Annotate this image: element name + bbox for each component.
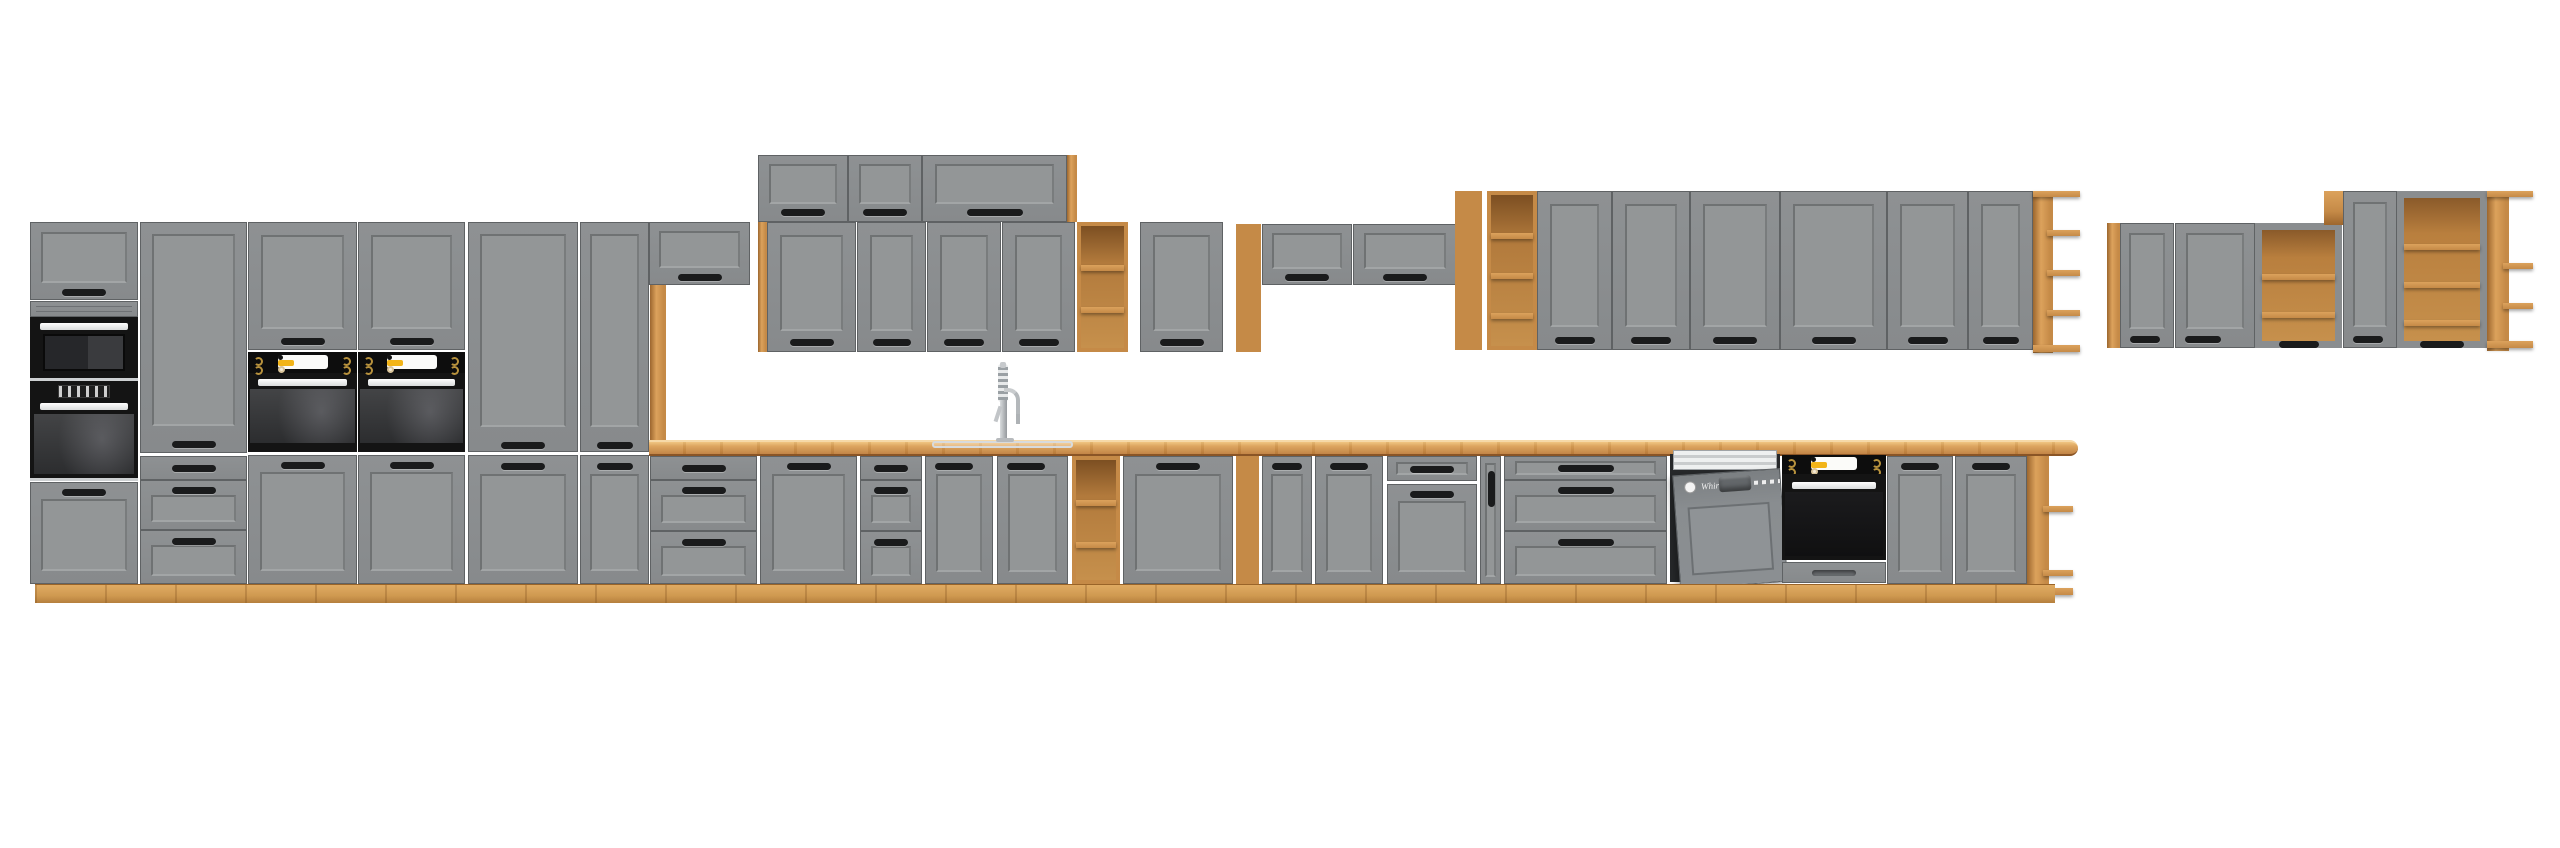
base-door-40b bbox=[1887, 456, 1953, 584]
base-oak-end-shelf bbox=[2027, 456, 2073, 596]
wall-door-r1 bbox=[1537, 191, 1612, 350]
tall-column-pantry-drawers bbox=[140, 222, 247, 584]
base-door-50 bbox=[1315, 456, 1383, 584]
base-open-shelf bbox=[1072, 456, 1120, 584]
built-in-oven-with-display bbox=[30, 381, 138, 478]
open-display-cabinet-2 bbox=[2397, 191, 2487, 348]
tall-pantry-60 bbox=[468, 222, 578, 584]
wall-door-r5 bbox=[1887, 191, 1968, 350]
oak-end-shelves-right bbox=[2487, 191, 2533, 351]
wall-open-shelf bbox=[1077, 222, 1128, 352]
base-door bbox=[248, 455, 357, 584]
oak-end-panel-left bbox=[2107, 223, 2120, 348]
base-door-40 bbox=[1262, 456, 1312, 584]
oak-end-strip bbox=[758, 222, 767, 352]
oven-tower-1 bbox=[248, 222, 357, 584]
oven-glass bbox=[1785, 492, 1883, 556]
counter-support-post bbox=[650, 285, 666, 442]
dishwasher-knob bbox=[1684, 481, 1697, 494]
dishwasher-pocket-handle bbox=[1718, 475, 1751, 492]
wall-door-fr2 bbox=[2175, 223, 2255, 348]
tall-pantry-40 bbox=[580, 222, 649, 584]
flip-up-wall-cabinet-2 bbox=[1262, 224, 1352, 285]
flip-door bbox=[848, 155, 922, 222]
base-door-80b bbox=[1123, 456, 1233, 584]
oven-glass bbox=[360, 389, 463, 443]
base-drawer-unit-1 bbox=[650, 456, 757, 584]
wall-cabinet-80 bbox=[1140, 222, 1223, 352]
oven-handle bbox=[368, 379, 455, 386]
sink-faucet bbox=[988, 362, 1032, 444]
stacked-top-cabinet-row bbox=[758, 155, 1077, 222]
dishwasher-buttons bbox=[1754, 479, 1780, 485]
flip-door-wide bbox=[922, 155, 1067, 222]
base-door-40c bbox=[1955, 456, 2027, 584]
cargo-pull-out-15 bbox=[1480, 456, 1501, 584]
drawer-1 bbox=[140, 456, 247, 480]
tall-door bbox=[140, 222, 247, 453]
sink-base-door-1 bbox=[925, 456, 993, 584]
oak-end-panel bbox=[1067, 155, 1077, 222]
oven-glass bbox=[250, 389, 355, 443]
oak-worktop bbox=[649, 440, 2078, 456]
wall-door-r6 bbox=[1968, 191, 2033, 350]
lower-door bbox=[468, 455, 578, 584]
wall-wine-rack-column bbox=[1236, 224, 1261, 352]
oak-plinth bbox=[35, 584, 2055, 603]
oven-handle bbox=[258, 379, 347, 386]
base-door bbox=[358, 455, 465, 584]
microwave bbox=[30, 317, 138, 378]
flip-up-wall-cabinet-3 bbox=[1353, 224, 1457, 285]
vertical-handle bbox=[1488, 471, 1495, 507]
wall-door-fr1 bbox=[2120, 223, 2174, 348]
oven-tower-2 bbox=[358, 222, 465, 584]
oak-filler bbox=[2324, 191, 2344, 225]
top-door bbox=[30, 222, 138, 300]
dishwasher-door-ajar: Whirlpool bbox=[1672, 468, 1788, 589]
flip-up-wall-cabinet-1 bbox=[649, 222, 750, 285]
flip-door bbox=[758, 155, 848, 222]
wall-door-m4 bbox=[1002, 222, 1075, 352]
built-in-oven bbox=[248, 352, 357, 452]
oven-base-drawer bbox=[1782, 562, 1886, 583]
oak-open-shelf-unit bbox=[1487, 191, 1537, 350]
door-handle bbox=[62, 489, 106, 496]
sink-base-door-2 bbox=[997, 456, 1068, 584]
oven-display bbox=[58, 385, 110, 398]
base-built-in-oven bbox=[1782, 455, 1886, 584]
oak-end-shelves bbox=[2033, 191, 2080, 353]
wall-door-m2 bbox=[857, 222, 926, 352]
microwave-window bbox=[43, 334, 125, 371]
oak-cubby-column bbox=[1455, 191, 1482, 350]
oven-display bbox=[278, 355, 328, 369]
wall-door-m3 bbox=[927, 222, 1001, 352]
kitchen-set-product-image: Whirlpool bbox=[0, 0, 2560, 848]
dishwasher: Whirlpool bbox=[1668, 450, 1784, 584]
drawer-2 bbox=[140, 480, 247, 530]
oven-handle bbox=[40, 403, 128, 410]
base-door-80 bbox=[760, 456, 857, 584]
oven-handle bbox=[1792, 482, 1876, 489]
bottom-door bbox=[30, 482, 138, 584]
oven-glass bbox=[34, 414, 134, 474]
base-drawer-unit-2 bbox=[860, 456, 922, 584]
base-wine-rack bbox=[1236, 456, 1259, 584]
open-display-cabinet-1 bbox=[2255, 223, 2342, 348]
base-drawer-unit-3-wide bbox=[1504, 456, 1667, 584]
lower-door bbox=[580, 455, 649, 584]
built-in-oven bbox=[358, 352, 465, 452]
upper-door bbox=[580, 222, 649, 452]
wall-door-r2 bbox=[1612, 191, 1690, 350]
wall-door-m1 bbox=[767, 222, 856, 352]
tall-column-oven-microwave bbox=[30, 222, 138, 584]
wall-door-r3 bbox=[1690, 191, 1780, 350]
oven-display bbox=[387, 355, 437, 369]
base-drawer-over-door bbox=[1387, 456, 1477, 584]
wall-door bbox=[248, 222, 357, 350]
drawer-3 bbox=[140, 530, 247, 584]
dishwasher-open-top bbox=[1673, 450, 1777, 470]
filler-rail bbox=[30, 301, 138, 317]
oven-display bbox=[1811, 457, 1857, 470]
door-handle bbox=[62, 289, 106, 296]
wall-door-r4 bbox=[1780, 191, 1887, 350]
wall-door bbox=[358, 222, 465, 350]
upper-door bbox=[468, 222, 578, 452]
wall-door-fr3-tall bbox=[2343, 191, 2397, 348]
microwave-handle bbox=[40, 323, 128, 330]
